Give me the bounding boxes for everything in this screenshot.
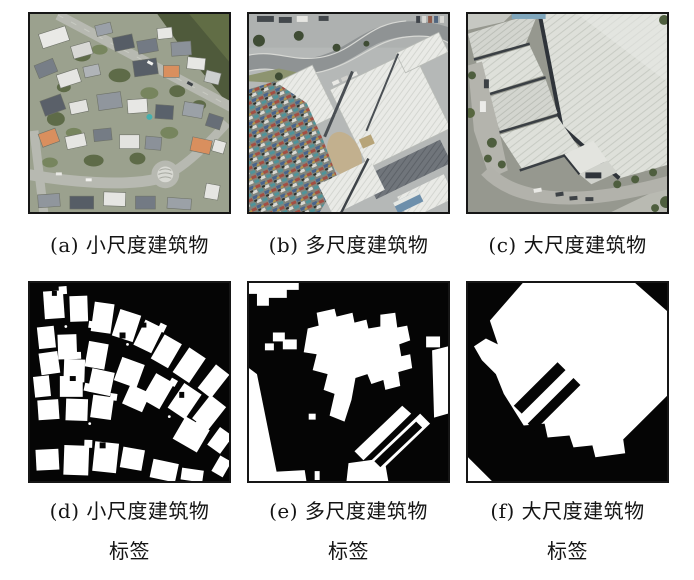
caption-panel-d: (d) 小尺度建筑物 标签 (28, 498, 231, 565)
aerial-photo-large-buildings (468, 14, 667, 212)
caption-panel-f-line2: 标签 (466, 538, 669, 565)
panel-b-aerial-multi-buildings (247, 12, 450, 214)
panel-e-mask-multi-buildings (247, 281, 450, 483)
caption-panel-d-line1: (d) 小尺度建筑物 (28, 498, 231, 525)
aerial-photo-multi-buildings (249, 14, 448, 212)
swimming-pool (146, 114, 152, 120)
caption-row-top: (a) 小尺度建筑物 (b) 多尺度建筑物 (c) 大尺度建筑物 (0, 232, 694, 259)
aerial-photo-small-buildings (30, 14, 229, 212)
caption-panel-e-line1: (e) 多尺度建筑物 (247, 498, 450, 525)
aerial-image-row (0, 12, 694, 214)
caption-row-bottom: (d) 小尺度建筑物 标签 (e) 多尺度建筑物 标签 (f) 大尺度建筑物 标… (0, 498, 694, 565)
caption-panel-e-line2: 标签 (247, 538, 450, 565)
panel-c-aerial-large-buildings (466, 12, 669, 214)
caption-panel-d-line2: 标签 (28, 538, 231, 565)
figure-page: (a) 小尺度建筑物 (b) 多尺度建筑物 (c) 大尺度建筑物 (0, 0, 694, 580)
caption-panel-f-line1: (f) 大尺度建筑物 (466, 498, 669, 525)
label-mask-large-buildings (468, 283, 667, 481)
panel-f-mask-large-buildings (466, 281, 669, 483)
blue-roof-strip (512, 14, 546, 19)
caption-panel-a: (a) 小尺度建筑物 (28, 232, 231, 259)
caption-panel-c: (c) 大尺度建筑物 (466, 232, 669, 259)
mask-row (0, 281, 694, 483)
label-mask-small-buildings (30, 283, 229, 481)
caption-panel-b: (b) 多尺度建筑物 (247, 232, 450, 259)
panel-d-mask-small-buildings (28, 281, 231, 483)
panel-a-aerial-small-buildings (28, 12, 231, 214)
label-mask-multi-buildings (249, 283, 448, 481)
caption-panel-e: (e) 多尺度建筑物 标签 (247, 498, 450, 565)
caption-panel-f: (f) 大尺度建筑物 标签 (466, 498, 669, 565)
